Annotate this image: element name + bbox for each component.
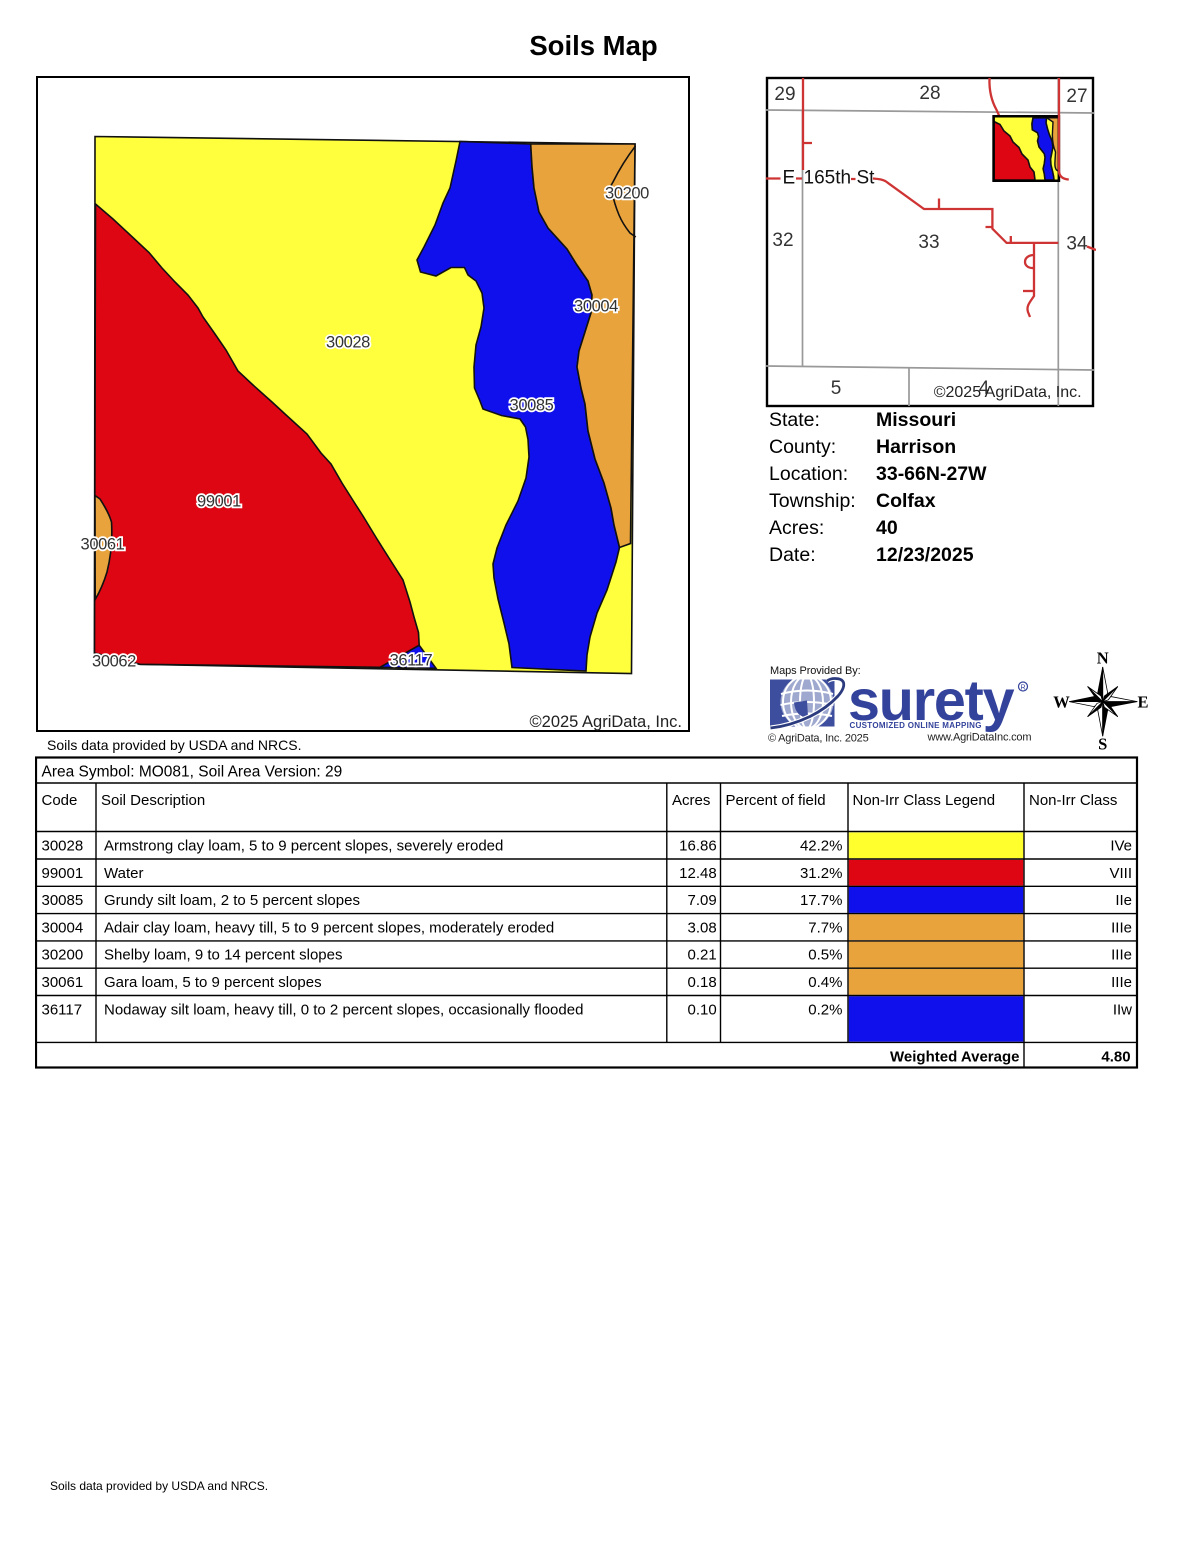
svg-text:30200: 30200 [605,185,649,203]
svg-text:31.2%: 31.2% [800,865,843,882]
svg-text:3.08: 3.08 [687,919,716,936]
svg-text:30028: 30028 [42,837,84,854]
svg-text:36117: 36117 [42,1001,83,1018]
svg-text:www.AgriDataInc.com: www.AgriDataInc.com [927,732,1032,744]
svg-text:30085: 30085 [510,397,554,415]
svg-text:IVe: IVe [1110,837,1132,854]
svg-text:E: E [1137,693,1148,712]
svg-text:Code: Code [42,792,78,809]
svg-text:Non-Irr Class: Non-Irr Class [1029,792,1117,809]
svg-text:0.21: 0.21 [687,947,716,964]
svg-text:St: St [857,168,876,189]
svg-text:7.7%: 7.7% [808,919,842,936]
svg-text:5: 5 [831,378,842,399]
svg-text:VIII: VIII [1109,865,1132,882]
svg-text:0.10: 0.10 [687,1001,716,1018]
svg-text:30061: 30061 [81,536,125,554]
svg-text:Water: Water [104,865,143,882]
svg-text:Soil Description: Soil Description [101,792,205,809]
svg-text:Nodaway silt loam, heavy till,: Nodaway silt loam, heavy till, 0 to 2 pe… [104,1001,583,1018]
svg-text:30062: 30062 [92,653,136,671]
svg-text:30004: 30004 [42,919,84,936]
svg-text:99001: 99001 [197,493,241,511]
svg-text:29: 29 [774,84,795,105]
svg-text:12.48: 12.48 [679,865,717,882]
svg-text:30085: 30085 [42,892,84,909]
svg-text:42.2%: 42.2% [800,837,843,854]
svg-text:Acres: Acres [672,792,710,809]
svg-text:Gara loam, 5 to 9 percent slop: Gara loam, 5 to 9 percent slopes [104,974,322,991]
svg-text:Non-Irr Class Legend: Non-Irr Class Legend [853,792,996,809]
svg-text:0.4%: 0.4% [808,974,842,991]
svg-text:©2025 AgriData, Inc.: ©2025 AgriData, Inc. [530,713,683,731]
svg-text:Area Symbol: MO081, Soil Area: Area Symbol: MO081, Soil Area Version: 2… [42,764,343,781]
svg-text:IIIe: IIIe [1111,919,1132,936]
svg-text:S: S [1098,735,1107,754]
svg-text:30004: 30004 [574,298,618,316]
svg-text:CUSTOMIZED ONLINE MAPPING: CUSTOMIZED ONLINE MAPPING [850,721,982,730]
svg-text:Grundy silt loam, 2 to 5 perce: Grundy silt loam, 2 to 5 percent slopes [104,892,360,909]
svg-text:165th: 165th [804,168,852,189]
svg-text:7.09: 7.09 [687,892,716,909]
svg-text:17.7%: 17.7% [800,892,843,909]
svg-text:IIIe: IIIe [1111,974,1132,991]
svg-text:33: 33 [918,232,939,253]
svg-text:Shelby loam, 9 to 14 percent s: Shelby loam, 9 to 14 percent slopes [104,947,342,964]
svg-text:W: W [1053,693,1070,712]
svg-text:30028: 30028 [326,334,370,352]
svg-text:IIw: IIw [1113,1001,1132,1018]
svg-text:IIIe: IIIe [1111,947,1132,964]
svg-text:IIe: IIe [1115,892,1132,909]
svg-text:28: 28 [919,83,940,104]
svg-text:99001: 99001 [42,865,84,882]
svg-text:30200: 30200 [42,947,84,964]
svg-text:0.18: 0.18 [687,974,716,991]
svg-text:4.80: 4.80 [1101,1048,1130,1065]
svg-text:Percent of field: Percent of field [726,792,826,809]
svg-text:Weighted Average: Weighted Average [890,1048,1019,1065]
svg-text:©2025 AgriData, Inc.: ©2025 AgriData, Inc. [934,384,1082,401]
svg-text:E: E [783,168,796,189]
svg-text:16.86: 16.86 [679,837,717,854]
svg-text:Adair clay loam, heavy till, 5: Adair clay loam, heavy till, 5 to 9 perc… [104,919,554,936]
svg-text:32: 32 [772,230,793,251]
svg-text:0.5%: 0.5% [808,947,842,964]
svg-text:30061: 30061 [42,974,84,991]
svg-text:27: 27 [1066,86,1087,107]
svg-text:N: N [1097,649,1109,668]
svg-text:0.2%: 0.2% [808,1001,842,1018]
svg-text:Armstrong clay loam, 5 to 9 pe: Armstrong clay loam, 5 to 9 percent slop… [104,837,503,854]
svg-text:34: 34 [1066,234,1088,255]
svg-text:36117: 36117 [390,652,433,670]
svg-text:R: R [1020,685,1025,692]
svg-text:© AgriData, Inc. 2025: © AgriData, Inc. 2025 [768,733,869,745]
